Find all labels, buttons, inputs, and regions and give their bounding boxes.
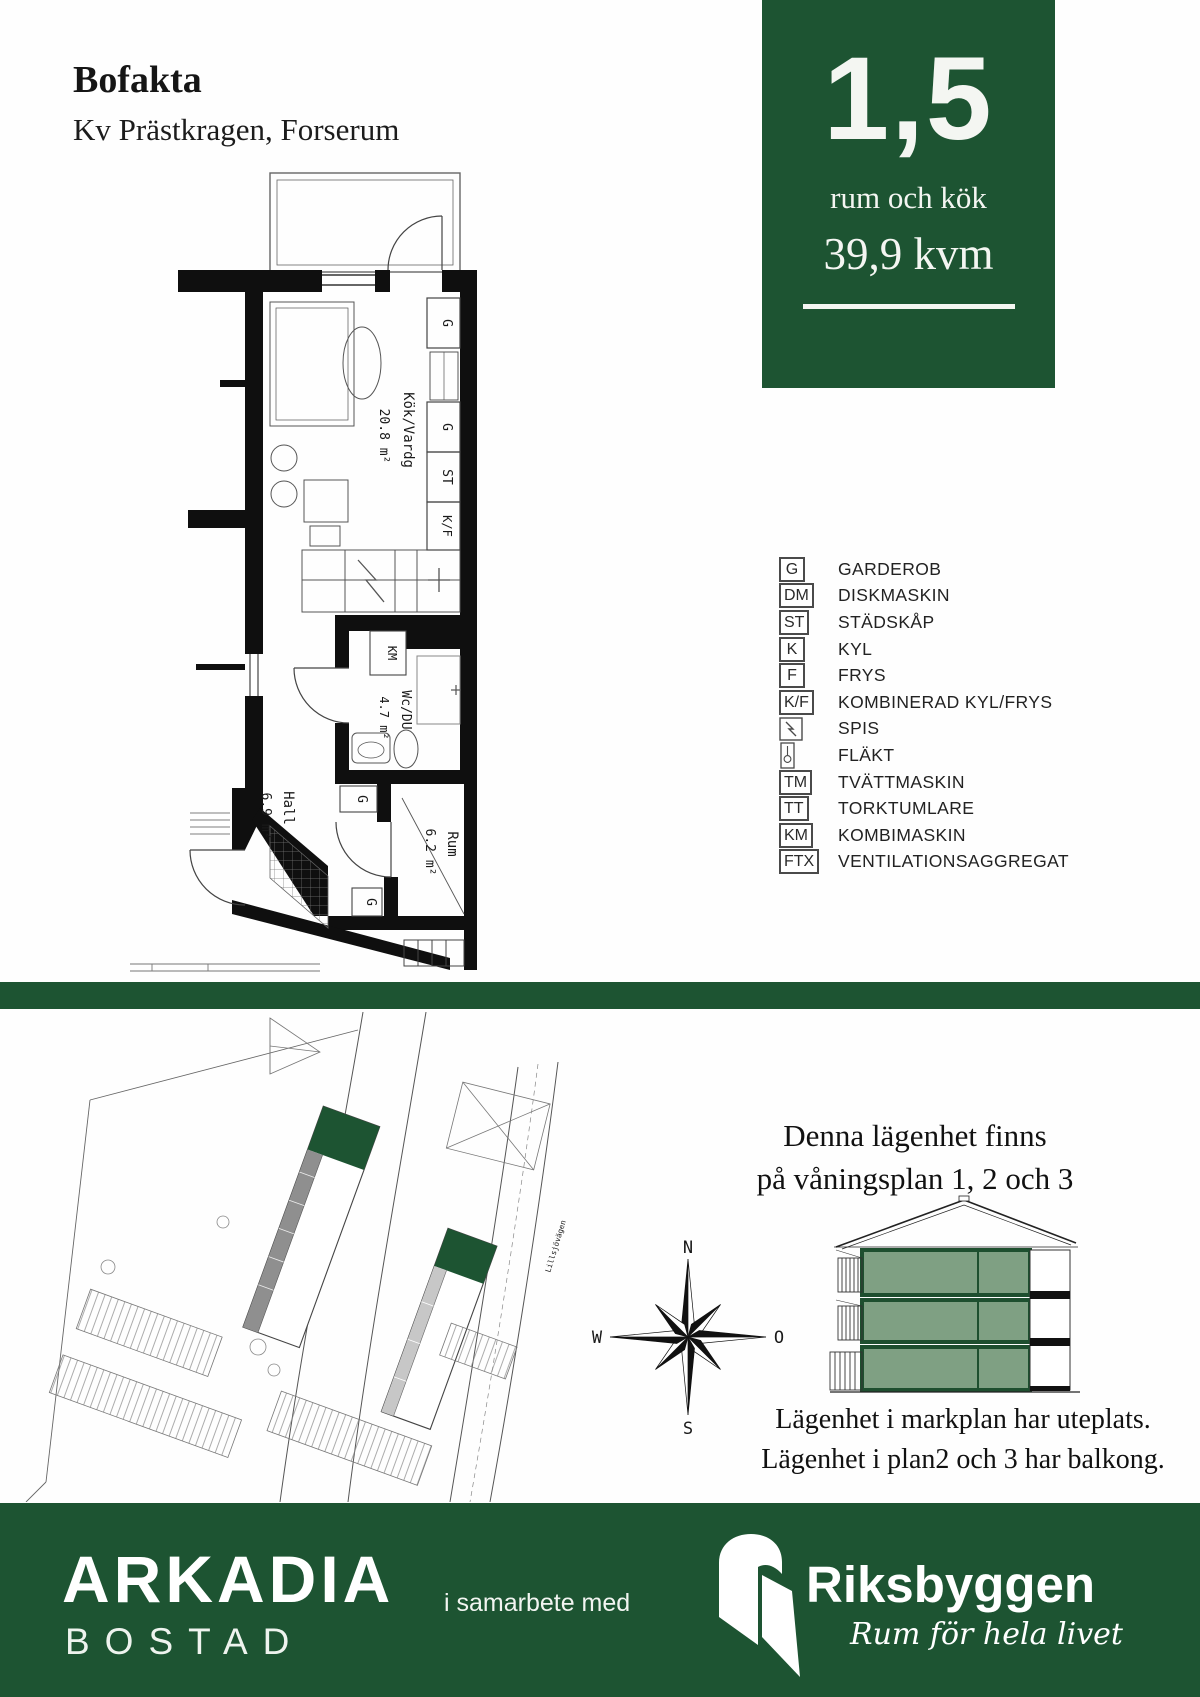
marker-g-top: G [439, 319, 454, 327]
room-count-unit: rum och kök [762, 180, 1055, 216]
room-area-kok: 20.8 m² [376, 409, 391, 464]
page-subtitle: Kv Prästkragen, Forserum [73, 112, 399, 148]
apartment-info-box: 1,5 rum och kök 39,9 kvm [762, 0, 1055, 388]
section-right-part [1030, 1250, 1070, 1391]
legend-code: DM [779, 583, 814, 608]
entrance-railing [190, 813, 230, 834]
room-label-hall: Hall [280, 791, 296, 825]
legend-row: TM TVÄTTMASKIN [779, 769, 1069, 796]
room-area-wc: 4.7 m² [377, 696, 391, 739]
site-building-a [243, 1106, 380, 1347]
riksbyggen-tagline: Rum för hela livet [850, 1617, 1123, 1652]
room-area-hall: 6.9 m² [258, 793, 273, 840]
apartment-area: 39,9 kvm [762, 228, 1055, 280]
legend-row: K KYL [779, 636, 1069, 663]
balcony [270, 173, 460, 272]
window-top [322, 275, 375, 285]
availability-line1: Denna lägenhet finns [700, 1114, 1130, 1157]
site-building-b [381, 1228, 497, 1429]
section-balconies [830, 1250, 862, 1390]
legend-code: G [779, 557, 805, 582]
arkadia-logo-subtext: BOSTAD [65, 1621, 304, 1663]
floor-plan-drawing: Kök/Vardg 20.8 m² Wc/DU 4.7 m² Hall 6.9 … [112, 158, 477, 988]
legend-row: FTX VENTILATIONSAGGREGAT [779, 849, 1069, 876]
note-line2: Lägenhet i plan2 och 3 har balkong. [748, 1440, 1178, 1480]
section-floors [862, 1250, 1030, 1390]
compass-east: O [774, 1328, 784, 1348]
legend-row: FLÄKT [779, 742, 1069, 769]
room-area-rum: 6.2 m² [422, 829, 437, 876]
green-divider [0, 982, 1200, 1009]
info-rule [803, 304, 1015, 309]
legend-row: K/F KOMBINERAD KYL/FRYS [779, 689, 1069, 716]
page-title: Bofakta [73, 58, 202, 102]
legend-row: KM KOMBIMASKIN [779, 822, 1069, 849]
legend-code: FTX [779, 849, 819, 874]
room-label-wc: Wc/DU [398, 690, 413, 729]
legend-row: TT TORKTUMLARE [779, 795, 1069, 822]
building-section-drawing [828, 1190, 1084, 1402]
marker-kf: K/F [440, 515, 454, 537]
riksbyggen-logo-icon [716, 1531, 800, 1677]
spis-icon [779, 717, 803, 741]
legend-row: DM DISKMASKIN [779, 583, 1069, 610]
compass-north: N [683, 1240, 693, 1258]
marker-g-hall: G [354, 795, 369, 803]
marker-g-rum: G [363, 898, 378, 906]
marker-g-mid: G [439, 423, 454, 431]
legend-code: ST [779, 610, 809, 635]
legend-code: F [779, 663, 805, 688]
legend-code: TM [779, 770, 812, 795]
riksbyggen-logo-text: Riksbyggen [806, 1555, 1095, 1614]
legend-code: K [779, 637, 805, 662]
legend-row: F FRYS [779, 662, 1069, 689]
legend-row: G GARDEROB [779, 556, 1069, 583]
section-roof [834, 1196, 1078, 1249]
compass-star [610, 1259, 766, 1415]
flakt-icon [779, 742, 797, 769]
window-left [250, 654, 258, 696]
cooperation-text: i samarbete med [444, 1589, 630, 1618]
legend-code: K/F [779, 690, 814, 715]
compass-west: W [592, 1328, 603, 1348]
road-label: Lillsjövägen [543, 1219, 567, 1273]
symbol-legend: G GARDEROB DM DISKMASKIN ST STÄDSKÅP K K… [779, 556, 1069, 875]
balcony-notes: Lägenhet i markplan har uteplats. Lägenh… [748, 1400, 1178, 1480]
site-plan-drawing: Lillsjövägen [18, 1012, 574, 1502]
legend-code: TT [779, 796, 809, 821]
legend-code: KM [779, 823, 813, 848]
furniture [270, 298, 464, 916]
room-label-kok: Kök/Vardg [400, 392, 416, 468]
site-house-xroof [446, 1082, 550, 1170]
room-count: 1,5 [762, 40, 1055, 158]
footer-bar: ARKADIA BOSTAD i samarbete med Riksbygge… [0, 1503, 1200, 1697]
bofakta-flyer: Bofakta Kv Prästkragen, Forserum 1,5 rum… [0, 0, 1200, 1697]
arkadia-logo-text: ARKADIA [62, 1541, 394, 1617]
compass-south: S [683, 1419, 693, 1439]
legend-row: ST STÄDSKÅP [779, 609, 1069, 636]
marker-km: KM [385, 646, 399, 660]
note-line1: Lägenhet i markplan har uteplats. [748, 1400, 1178, 1440]
marker-st: ST [439, 469, 454, 485]
room-label-rum: Rum [444, 831, 460, 856]
legend-row: SPIS [779, 716, 1069, 743]
ground-lines [130, 964, 320, 971]
availability-text: Denna lägenhet finns på våningsplan 1, 2… [700, 1114, 1130, 1200]
